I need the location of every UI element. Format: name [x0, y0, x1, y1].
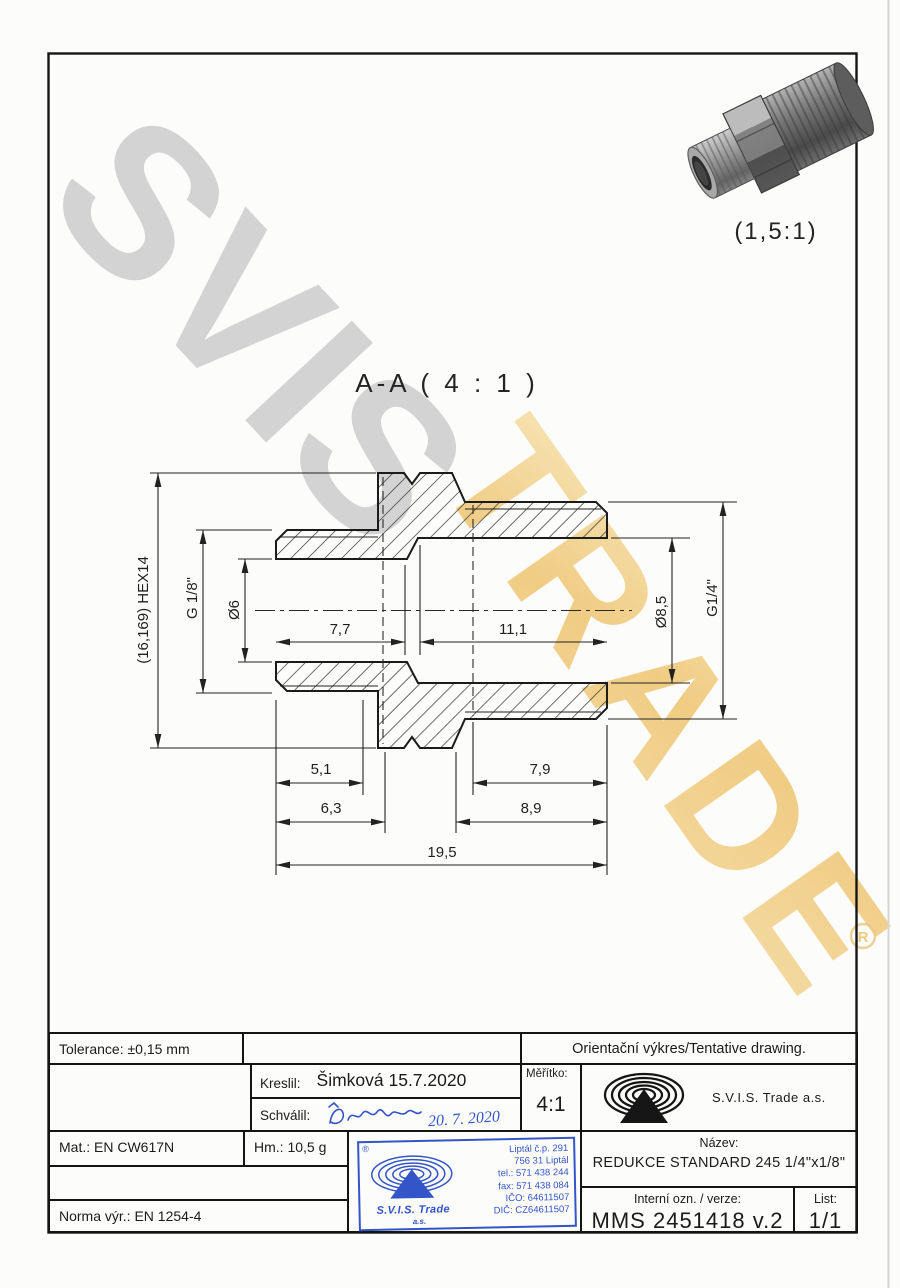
- stamp-registered-icon: ®: [362, 1144, 369, 1154]
- stamp-company: S.V.I.S. Trade: [376, 1203, 450, 1217]
- meritko-label: Měřítko:: [526, 1068, 568, 1080]
- schvalil-cell: Schválil: 20. 7. 2020: [250, 1097, 522, 1132]
- nazev-cell: Název: REDUKCE STANDARD 245 1/4"x1/8": [580, 1130, 858, 1188]
- svg-text:R: R: [858, 929, 869, 946]
- pictorial-scale-label: (1,5:1): [734, 218, 817, 245]
- material-cell: Mat.: EN CW617N: [48, 1130, 245, 1167]
- interni-cell: Interní ozn. / verze: MMS 2451418 v.2: [580, 1186, 795, 1233]
- pictorial-3d-view: (1,5:1): [675, 55, 882, 245]
- nazev-value: REDUKCE STANDARD 245 1/4"x1/8": [582, 1155, 856, 1171]
- dim-195: 19,5: [427, 844, 456, 861]
- signature: 20. 7. 2020: [324, 1099, 520, 1131]
- empty-cell-top: [242, 1032, 522, 1065]
- dim-89: 8,9: [521, 800, 542, 817]
- kreslil-cell: Kreslil: Šimková 15.7.2020: [250, 1063, 522, 1099]
- list-value: 1/1: [795, 1208, 856, 1234]
- interni-label: Interní ozn. / verze:: [582, 1192, 793, 1206]
- dim-111: 11,1: [499, 621, 527, 638]
- section-title: A-A ( 4 : 1 ): [355, 368, 539, 398]
- norma-cell: Norma výr.: EN 1254-4: [48, 1199, 349, 1233]
- svis-logo-icon: [602, 1069, 690, 1127]
- dim-g18: G 1/8": [184, 577, 201, 619]
- stamp-line: DIČ: CZ64611507: [494, 1204, 570, 1218]
- meritko-cell: Měřítko: 4:1: [520, 1063, 582, 1132]
- dim-77: 7,7: [330, 621, 351, 638]
- company-name: S.V.I.S. Trade a.s.: [712, 1090, 826, 1105]
- schvalil-label: Schválil:: [260, 1108, 310, 1123]
- kreslil-label: Kreslil:: [260, 1076, 301, 1091]
- stamp-logo-icon: [367, 1153, 456, 1201]
- stamp-line: tel.: 571 438 244: [493, 1167, 569, 1181]
- dim-d85: Ø8,5: [653, 596, 670, 629]
- dim-hex14: (16,169) HEX14: [135, 556, 152, 664]
- company-cell: S.V.I.S. Trade a.s.: [580, 1063, 858, 1132]
- empty-cell-bottom: [48, 1165, 349, 1201]
- stamp-address: Liptál č.p. 291 756 31 Liptál tel.: 571 …: [492, 1143, 569, 1218]
- nazev-label: Název:: [582, 1136, 856, 1150]
- dim-51: 5,1: [311, 761, 332, 778]
- stamp-cell: ® S.V.I.S. Trade a.s. Liptál č.p. 291 7: [347, 1130, 582, 1233]
- mass-cell: Hm.: 10,5 g: [243, 1130, 349, 1167]
- dim-63: 6,3: [321, 800, 342, 817]
- dim-79: 7,9: [530, 761, 551, 778]
- company-stamp: ® S.V.I.S. Trade a.s. Liptál č.p. 291 7: [357, 1137, 577, 1232]
- meritko-value: 4:1: [522, 1083, 580, 1127]
- list-cell: List: 1/1: [793, 1186, 858, 1233]
- dim-g14: G1/4": [704, 579, 721, 617]
- signature-date: 20. 7. 2020: [427, 1108, 500, 1130]
- tentative-drawing-cell: Orientační výkres/Tentative drawing.: [520, 1032, 858, 1065]
- interni-value: MMS 2451418 v.2: [582, 1208, 793, 1234]
- empty-cell-left: [48, 1063, 252, 1132]
- dim-d6: Ø6: [226, 600, 243, 620]
- kreslil-value: Šimková 15.7.2020: [317, 1070, 467, 1091]
- tolerance-cell: Tolerance: ±0,15 mm: [48, 1032, 244, 1065]
- stamp-company-suffix: a.s.: [413, 1217, 427, 1226]
- drawing-sheet: SVIS TRADE R A-A ( 4 : 1 ): [0, 0, 900, 1288]
- list-label: List:: [795, 1192, 856, 1206]
